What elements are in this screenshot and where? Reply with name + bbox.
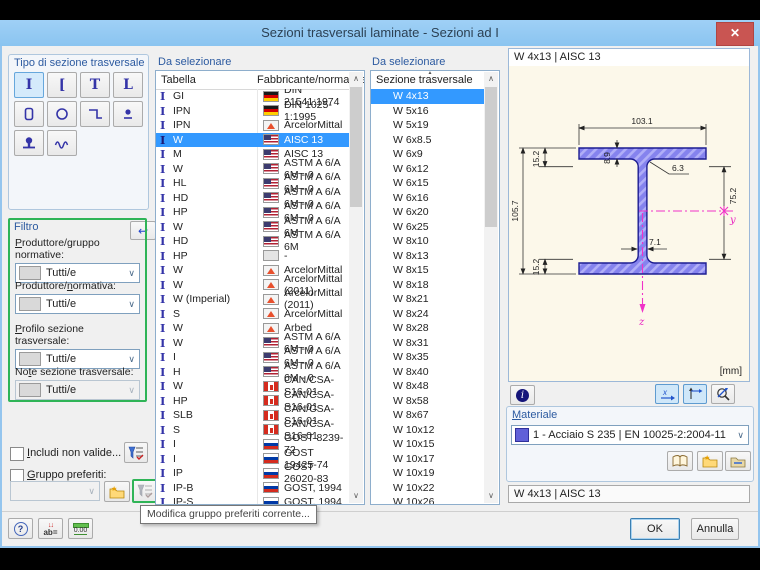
dim-k-top: 15.2 (531, 150, 541, 167)
table-name: W (Imperial) (173, 293, 230, 305)
svg-text:★: ★ (704, 454, 710, 462)
i-profile-icon: I (160, 307, 173, 321)
section-drawing: 103.1 105.7 15.2 15.2 8.9 (509, 66, 749, 387)
scrollbar-thumb[interactable] (350, 87, 362, 207)
flag-us-icon (263, 134, 279, 145)
channel-icon: [ (59, 77, 66, 93)
table-name: IP-B (173, 482, 193, 494)
list-item[interactable]: W 8x21 (371, 292, 484, 307)
table-row[interactable]: IHDASTM A 6/A 6M (156, 234, 349, 249)
list-item[interactable]: W 10x19 (371, 466, 484, 481)
list-item[interactable]: W 8x15 (371, 263, 484, 278)
title-bar: Sezioni trasversali laminate - Sezioni a… (0, 20, 760, 46)
chevron-down-icon: ∨ (128, 354, 135, 365)
list-item[interactable]: W 8x24 (371, 307, 484, 322)
flag-us-icon (263, 149, 279, 160)
material-value: 1 - Acciaio S 235 | EN 10025-2:2004-11 (533, 429, 726, 441)
list-item[interactable]: W 5x19 (371, 118, 484, 133)
i-profile-icon: I (160, 263, 173, 277)
material-group-title: Materiale (512, 409, 557, 421)
edit-material-button[interactable] (725, 451, 751, 471)
i-profile-icon: I (160, 205, 173, 219)
i-profile-icon: I (160, 118, 173, 132)
i-profile-icon: I (160, 481, 173, 495)
flag-none-icon (263, 250, 279, 261)
flag-de-icon (263, 91, 279, 102)
i-profile-icon: I (160, 191, 173, 205)
z-axis-label: z (638, 317, 645, 328)
material-library-button[interactable] (667, 451, 693, 471)
axes-icon: x (659, 388, 676, 401)
section-preview-panel: W 4x13 | AISC 13 103.1 (508, 48, 750, 382)
list-item[interactable]: W 8x67 (371, 408, 484, 423)
i-profile-icon: I (160, 437, 173, 451)
dim-k-bottom: 15.2 (531, 258, 541, 275)
tooltip: Modifica gruppo preferiti corrente... (140, 505, 317, 524)
favorites-group-label: Gruppo preferiti: (27, 469, 107, 481)
flag-us-icon (263, 207, 279, 218)
y-axis-label: y (729, 215, 736, 226)
flag-am-icon (263, 279, 279, 290)
ok-button[interactable]: OK (630, 518, 680, 540)
filter-profile: Profilo sezione trasversale: Tutti/e∨ (15, 323, 140, 369)
new-favorites-group-button[interactable]: ★ (104, 481, 130, 502)
table-row[interactable]: IIPNArcelorMittal (156, 118, 349, 133)
list-item[interactable]: W 8x13 (371, 249, 484, 264)
section-info-button[interactable]: i (510, 385, 535, 405)
corrugated-icon (53, 135, 71, 151)
table-name: I (173, 351, 176, 363)
type-corrugated-button[interactable] (47, 130, 77, 156)
flag-am-icon (263, 265, 279, 276)
table-name: IPN (173, 119, 191, 131)
list-item[interactable]: W 10x12 (371, 423, 484, 438)
table-name: I (173, 453, 176, 465)
round-bar-icon (120, 106, 136, 122)
i-profile-icon: I (160, 350, 173, 364)
edit-section-filter-button[interactable] (124, 442, 148, 463)
color-swatch (19, 352, 41, 366)
chevron-down-icon: ∨ (128, 299, 135, 310)
filter-notes-select: Tutti/e∨ (15, 380, 140, 400)
table-name: HP (173, 250, 188, 262)
table-name: W (173, 279, 183, 291)
type-angle-button[interactable]: L (113, 72, 143, 98)
i-profile-icon: I (160, 249, 173, 263)
scroll-up-icon[interactable]: ∧ (484, 72, 498, 86)
table-name: HP (173, 395, 188, 407)
flag-ru-icon (263, 453, 279, 464)
svg-text:★: ★ (111, 485, 117, 493)
table-name: W (173, 337, 183, 349)
sort-icon: ↓↓ab= (43, 522, 57, 536)
new-folder-icon: ★ (108, 485, 126, 499)
table-name: HD (173, 192, 188, 204)
z-section-icon (86, 106, 104, 122)
selected-section-field: W 4x13 | AISC 13 (508, 485, 750, 503)
flag-ca-icon (263, 410, 279, 421)
section-type-grid: I [ T L (14, 72, 143, 156)
type-i-section-button[interactable]: I (14, 72, 44, 98)
section-table-body: IGIDIN 21541:1974IIPNDIN 1025-1:1995IIPN… (156, 89, 349, 504)
filter-group-title: Filtro (14, 221, 38, 233)
i-profile-icon: I (160, 336, 173, 350)
list-item[interactable]: W 6x9 (371, 147, 484, 162)
list-item[interactable]: W 8x40 (371, 365, 484, 380)
flag-ca-icon (263, 424, 279, 435)
table-name: IP (173, 467, 183, 479)
list-item[interactable]: W 6x15 (371, 176, 484, 191)
flag-am-icon (263, 308, 279, 319)
table-row[interactable]: IHP- (156, 249, 349, 264)
size-scrollbar: ∧ ∨ (484, 72, 498, 503)
table-name: W (173, 380, 183, 392)
list-item[interactable]: W 10x22 (371, 481, 484, 496)
info-icon: i (516, 389, 529, 402)
norm-name: - (284, 250, 288, 262)
table-row[interactable]: IIPGOST 26020-83 (156, 466, 349, 481)
type-hollow-box-button[interactable] (14, 101, 44, 127)
color-swatch (19, 297, 41, 311)
list-item[interactable]: W 8x10 (371, 234, 484, 249)
scroll-up-icon[interactable]: ∧ (349, 72, 363, 86)
size-list-body: W 4x13W 5x16W 5x19W 6x8.5W 6x9W 6x12W 6x… (371, 89, 484, 504)
edit-filter-icon (128, 446, 144, 460)
i-profile-icon: I (160, 495, 173, 504)
new-material-button[interactable]: ★ (697, 451, 723, 471)
list-item[interactable]: W 10x26 (371, 495, 484, 504)
table-header: Tabella Fabbricante/normativa (156, 71, 349, 90)
i-profile-icon: I (160, 147, 173, 161)
list-item[interactable]: W 8x35 (371, 350, 484, 365)
list-item[interactable]: W 8x18 (371, 278, 484, 293)
list-item[interactable]: W 5x16 (371, 104, 484, 119)
color-swatch (19, 266, 41, 280)
i-profile-icon: I (160, 423, 173, 437)
size-list-header[interactable]: ▲ Sezione trasversale (371, 71, 484, 90)
i-profile-icon: I (160, 89, 173, 103)
list-item[interactable]: W 8x31 (371, 336, 484, 351)
dim-height: 105.7 (510, 200, 520, 222)
type-round-bar-button[interactable] (113, 101, 143, 127)
flag-us-icon (263, 163, 279, 174)
list-item[interactable]: W 8x58 (371, 394, 484, 409)
scroll-down-icon[interactable]: ∨ (349, 489, 363, 503)
dim-width: 103.1 (631, 116, 653, 126)
sort-button[interactable]: ↓↓ab= (38, 518, 63, 539)
table-name: S (173, 308, 180, 320)
dialog-rolled-cross-sections: Sezioni trasversali laminate - Sezioni a… (0, 20, 760, 548)
table-name: W (173, 221, 183, 233)
table-row[interactable]: IIP-BGOST, 1994 (156, 481, 349, 496)
include-invalid-checkbox[interactable] (10, 447, 24, 461)
filter-producer-norm: Produttore/normativa: Tutti/e∨ (15, 280, 140, 314)
pipe-icon (54, 106, 70, 122)
norm-name: ArcelorMittal (284, 308, 342, 320)
flag-us-icon (263, 352, 279, 363)
dim-flange: 8.9 (602, 152, 612, 164)
flag-us-icon (263, 178, 279, 189)
help-icon: ? (14, 522, 28, 536)
preview-section-name: W 4x13 | AISC 13 (509, 49, 749, 66)
i-profile-icon: I (160, 133, 173, 147)
i-profile-icon: I (160, 278, 173, 292)
i-profile-icon: I (160, 292, 173, 306)
table-name: SLB (173, 409, 193, 421)
table-name: I (173, 438, 176, 450)
table-name: M (173, 148, 182, 160)
table-name: S (173, 424, 180, 436)
filter-label: Note sezione trasversale: (15, 366, 140, 378)
list-item[interactable]: W 6x8.5 (371, 133, 484, 148)
flag-us-icon (263, 366, 279, 377)
separator (2, 511, 758, 512)
sort-ascending-icon: ▲ (428, 70, 433, 76)
table-name: HP (173, 206, 188, 218)
units-button[interactable]: 0.00 (68, 518, 93, 539)
table-row[interactable]: ISArcelorMittal (156, 307, 349, 322)
table-name: IP-S (173, 496, 193, 504)
flag-ru-icon (263, 482, 279, 493)
list-item[interactable]: W 8x28 (371, 321, 484, 336)
dim-fillet: 6.3 (672, 163, 684, 173)
filter-producer-group: Produttore/gruppo normative: Tutti/e∨ (15, 237, 140, 283)
chevron-down-icon: ∨ (737, 430, 744, 441)
chevron-down-icon: ∨ (128, 268, 135, 279)
include-invalid-label: Includi non valide... (27, 447, 121, 459)
flag-am-icon (263, 323, 279, 334)
filter-notes: Note sezione trasversale: Tutti/e∨ (15, 366, 140, 400)
table-name: W (173, 264, 183, 276)
show-dimensions-button[interactable] (683, 384, 707, 404)
list-item[interactable]: W 4x13 (371, 89, 484, 104)
flag-us-icon (263, 221, 279, 232)
i-profile-icon: I (160, 466, 173, 480)
material-color-swatch (515, 428, 529, 442)
show-axes-button[interactable]: x (655, 384, 679, 404)
dim-web: 7.1 (649, 237, 661, 247)
dialog-title: Sezioni trasversali laminate - Sezioni a… (0, 20, 760, 46)
edit-favorites-group-button[interactable] (132, 479, 157, 503)
list-item[interactable]: W 6x12 (371, 162, 484, 177)
flag-ru-icon (263, 439, 279, 450)
table-name: W (173, 134, 183, 146)
scrollbar-thumb[interactable] (485, 87, 497, 227)
flag-ca-icon (263, 381, 279, 392)
section-table: Tabella Fabbricante/normativa IGIDIN 215… (155, 70, 365, 505)
table-row[interactable]: IIP-SGOST, 1994 (156, 495, 349, 504)
flag-us-icon (263, 192, 279, 203)
flag-ru-icon (263, 497, 279, 504)
table-name: W (173, 163, 183, 175)
dimensions-icon (687, 387, 703, 401)
angle-icon: L (123, 77, 133, 93)
list-item[interactable]: W 10x15 (371, 437, 484, 452)
list-item[interactable]: W 10x17 (371, 452, 484, 467)
flag-ca-icon (263, 395, 279, 406)
i-profile-icon: I (160, 321, 173, 335)
screen: Sezioni trasversali laminate - Sezioni a… (0, 0, 760, 570)
filter-group: Filtro Produttore/gruppo normative: Tutt… (8, 218, 147, 402)
chevron-down-icon: ∨ (88, 486, 95, 497)
material-select[interactable]: 1 - Acciaio S 235 | EN 10025-2:2004-11 ∨ (511, 425, 749, 445)
list-item[interactable]: W 6x16 (371, 191, 484, 206)
type-tee-button[interactable]: T (80, 72, 110, 98)
filter-label: Produttore/normativa: (15, 280, 140, 292)
table-name: H (173, 366, 181, 378)
hollow-box-icon (21, 106, 37, 122)
size-list: ▲ Sezione trasversale W 4x13W 5x16W 5x19… (370, 70, 500, 505)
help-button[interactable]: ? (8, 518, 33, 539)
flag-us-icon (263, 236, 279, 247)
type-rail-button[interactable] (14, 130, 44, 156)
table-panel-title: Da selezionare (158, 56, 231, 68)
cancel-button[interactable]: Annulla (691, 518, 739, 540)
norm-name: ArcelorMittal (284, 119, 342, 131)
flag-am-icon (263, 294, 279, 305)
units-label: [mm] (720, 366, 742, 377)
table-row[interactable]: IIPNDIN 1025-1:1995 (156, 104, 349, 119)
material-group: Materiale 1 - Acciaio S 235 | EN 10025-2… (506, 406, 754, 482)
zoom-fit-button[interactable] (711, 384, 735, 404)
type-z-section-button[interactable] (80, 101, 110, 127)
column-header-tabella[interactable]: Tabella (156, 74, 257, 86)
flag-us-icon (263, 337, 279, 348)
table-row[interactable]: IW (Imperial)ArcelorMittal (2011) (156, 292, 349, 307)
favorites-group-select: ∨ (10, 481, 100, 501)
table-row[interactable]: IWAISC 13 (156, 133, 349, 148)
i-profile-icon: I (160, 104, 173, 118)
filter-label: Profilo sezione trasversale: (15, 323, 140, 347)
type-channel-button[interactable]: [ (47, 72, 77, 98)
edit-favorites-icon (137, 484, 153, 498)
section-type-panel-title: Tipo di sezione trasversale (14, 57, 144, 69)
color-swatch (19, 383, 41, 397)
i-profile-icon: I (160, 452, 173, 466)
close-icon[interactable]: ✕ (716, 22, 754, 46)
type-pipe-button[interactable] (47, 101, 77, 127)
list-item[interactable]: W 6x25 (371, 220, 484, 235)
table-name: HL (173, 177, 186, 189)
chevron-down-icon: ∨ (128, 385, 135, 396)
units-icon: 0.00 (73, 523, 89, 535)
flag-am-icon (263, 120, 279, 131)
table-name: GI (173, 90, 184, 102)
size-panel-title: Da selezionare (372, 56, 445, 68)
table-name: IPN (173, 105, 191, 117)
book-icon (671, 454, 689, 468)
tee-icon: T (90, 77, 100, 93)
i-profile-icon: I (160, 365, 173, 379)
rail-icon (20, 135, 38, 151)
i-profile-icon: I (160, 408, 173, 422)
svg-text:x: x (662, 388, 668, 397)
i-profile-icon: I (160, 176, 173, 190)
scroll-down-icon[interactable]: ∨ (484, 489, 498, 503)
section-type-panel: Tipo di sezione trasversale I [ T L ↩ (8, 54, 149, 210)
i-section-icon: I (26, 77, 33, 93)
filter-producer-norm-select[interactable]: Tutti/e∨ (15, 294, 140, 314)
norm-name: GOST, 1994 (284, 482, 342, 494)
i-profile-icon: I (160, 394, 173, 408)
i-profile-icon: I (160, 162, 173, 176)
new-folder-icon: ★ (701, 454, 719, 468)
norm-name: AISC 13 (284, 134, 323, 146)
table-scrollbar: ∧ ∨ (349, 72, 363, 503)
norm-name: GOST, 1994 (284, 496, 342, 504)
i-profile-icon: I (160, 234, 173, 248)
dim-inner-height: 75.2 (728, 187, 738, 204)
edit-folder-icon (729, 454, 747, 468)
table-name: HD (173, 235, 188, 247)
table-name: W (173, 322, 183, 334)
list-item[interactable]: W 6x20 (371, 205, 484, 220)
filter-label: Produttore/gruppo normative: (15, 237, 140, 261)
i-profile-icon: I (160, 379, 173, 393)
list-item[interactable]: W 8x48 (371, 379, 484, 394)
flag-de-icon (263, 105, 279, 116)
i-profile-icon: I (160, 220, 173, 234)
flag-ru-icon (263, 468, 279, 479)
zoom-icon (715, 387, 731, 402)
